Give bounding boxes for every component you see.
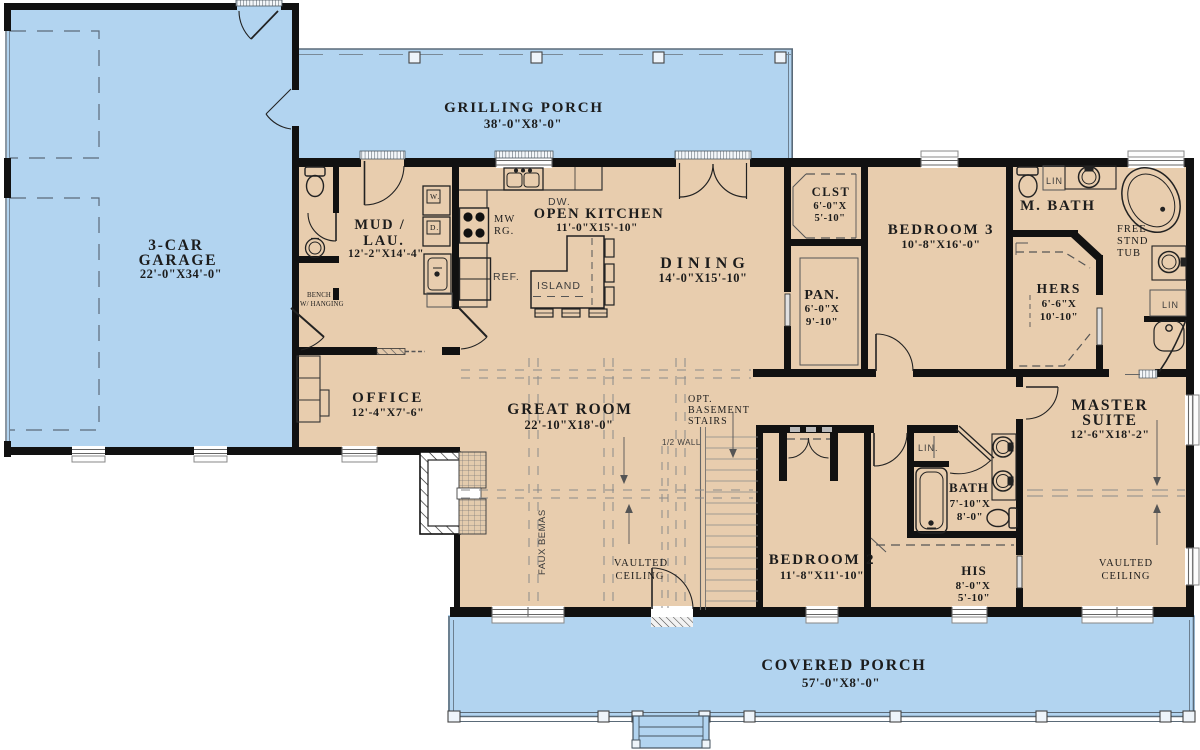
svg-text:11'-0"X15'-10": 11'-0"X15'-10" [556, 222, 638, 234]
svg-text:FAUX BEMAS: FAUX BEMAS [537, 509, 548, 575]
svg-text:5'-10": 5'-10" [815, 213, 846, 224]
svg-text:DINING: DINING [660, 255, 750, 272]
svg-text:FREE: FREE [1117, 224, 1147, 235]
svg-text:12'-6"X18'-2": 12'-6"X18'-2" [1070, 427, 1149, 441]
svg-text:GRILLING PORCH: GRILLING PORCH [444, 100, 604, 116]
svg-text:57'-0"X8'-0": 57'-0"X8'-0" [802, 675, 880, 690]
svg-text:14'-0"X15'-10": 14'-0"X15'-10" [659, 271, 748, 285]
svg-text:D.: D. [430, 223, 439, 232]
svg-text:PAN.: PAN. [804, 288, 839, 303]
svg-text:RG.: RG. [494, 226, 514, 237]
svg-text:W/ HANGING: W/ HANGING [300, 301, 344, 308]
svg-text:5'-10": 5'-10" [958, 592, 990, 604]
svg-text:VAULTED: VAULTED [1099, 558, 1153, 569]
svg-text:12'-2"X14'-4": 12'-2"X14'-4" [348, 248, 424, 260]
svg-text:OPT.: OPT. [688, 394, 713, 405]
svg-text:22'-10"X18'-0": 22'-10"X18'-0" [525, 418, 614, 432]
svg-text:22'-0"X34'-0": 22'-0"X34'-0" [140, 267, 222, 281]
svg-text:MUD /: MUD / [354, 217, 405, 233]
svg-text:BEDROOM 2: BEDROOM 2 [769, 552, 876, 568]
svg-text:STND: STND [1117, 236, 1148, 247]
svg-text:M. BATH: M. BATH [1020, 198, 1096, 214]
svg-text:COVERED PORCH: COVERED PORCH [761, 657, 926, 674]
svg-text:GREAT ROOM: GREAT ROOM [507, 401, 633, 418]
svg-text:HERS: HERS [1037, 281, 1082, 296]
svg-text:8'-0": 8'-0" [957, 511, 983, 523]
svg-text:HIS: HIS [961, 563, 986, 578]
svg-text:9'-10": 9'-10" [806, 316, 838, 328]
svg-text:BEDROOM 3: BEDROOM 3 [888, 222, 995, 238]
svg-text:CEILING: CEILING [1102, 571, 1151, 582]
svg-text:BATH: BATH [949, 480, 989, 495]
svg-text:TUB: TUB [1117, 248, 1141, 259]
svg-text:6'-0"X: 6'-0"X [805, 303, 840, 315]
svg-text:LAU.: LAU. [363, 233, 404, 249]
svg-text:12'-4"X7'-6": 12'-4"X7'-6" [352, 405, 425, 419]
svg-text:1/2 WALL: 1/2 WALL [662, 438, 701, 447]
svg-text:ISLAND: ISLAND [537, 280, 581, 292]
svg-text:LIN: LIN [1046, 176, 1063, 186]
svg-text:BASEMENT: BASEMENT [688, 405, 750, 416]
svg-text:10'-8"X16'-0": 10'-8"X16'-0" [901, 237, 980, 251]
svg-text:CEILING: CEILING [616, 571, 665, 582]
svg-text:6'-0"X: 6'-0"X [813, 201, 846, 212]
svg-text:LIN: LIN [1162, 300, 1179, 310]
svg-text:6'-6"X: 6'-6"X [1042, 298, 1077, 310]
svg-text:LIN.: LIN. [918, 443, 939, 453]
svg-text:VAULTED: VAULTED [614, 558, 668, 569]
svg-text:38'-0"X8'-0": 38'-0"X8'-0" [484, 116, 562, 131]
svg-text:DW.: DW. [548, 196, 571, 208]
svg-text:BENCH: BENCH [307, 292, 331, 299]
svg-text:W.: W. [430, 192, 440, 201]
svg-text:7'-10"X: 7'-10"X [950, 498, 991, 510]
svg-text:OPEN KITCHEN: OPEN KITCHEN [534, 206, 664, 222]
svg-text:11'-8"X11'-10": 11'-8"X11'-10" [780, 568, 864, 582]
svg-text:REF.: REF. [493, 271, 520, 283]
svg-text:10'-10": 10'-10" [1040, 311, 1078, 323]
svg-text:CLST: CLST [812, 185, 851, 199]
svg-text:MW: MW [494, 214, 515, 225]
svg-text:8'-0"X: 8'-0"X [956, 580, 991, 592]
svg-text:OFFICE: OFFICE [352, 390, 424, 406]
svg-text:STAIRS: STAIRS [688, 416, 728, 427]
